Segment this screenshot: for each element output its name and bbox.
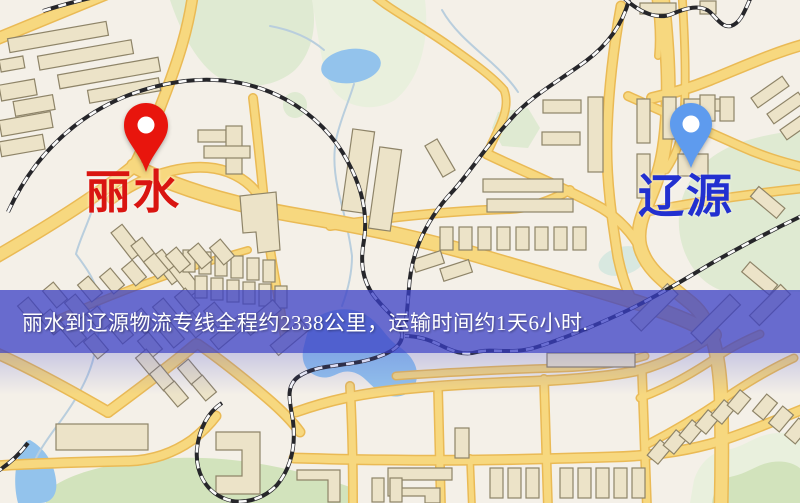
origin-city-label: 丽水 xyxy=(85,170,181,216)
logistics-route-map: 丽水 辽源 丽水到辽源物流专线全程约2338公里，运输时间约1天6小时. xyxy=(0,0,800,503)
route-info-text: 丽水到辽源物流专线全程约2338公里，运输时间约1天6小时. xyxy=(0,307,588,337)
destination-city-label: 辽源 xyxy=(638,174,734,220)
map-image xyxy=(0,0,800,503)
route-info-banner: 丽水到辽源物流专线全程约2338公里，运输时间约1天6小时. xyxy=(0,290,800,353)
pin-hole xyxy=(138,117,155,134)
pin-hole xyxy=(683,116,700,133)
